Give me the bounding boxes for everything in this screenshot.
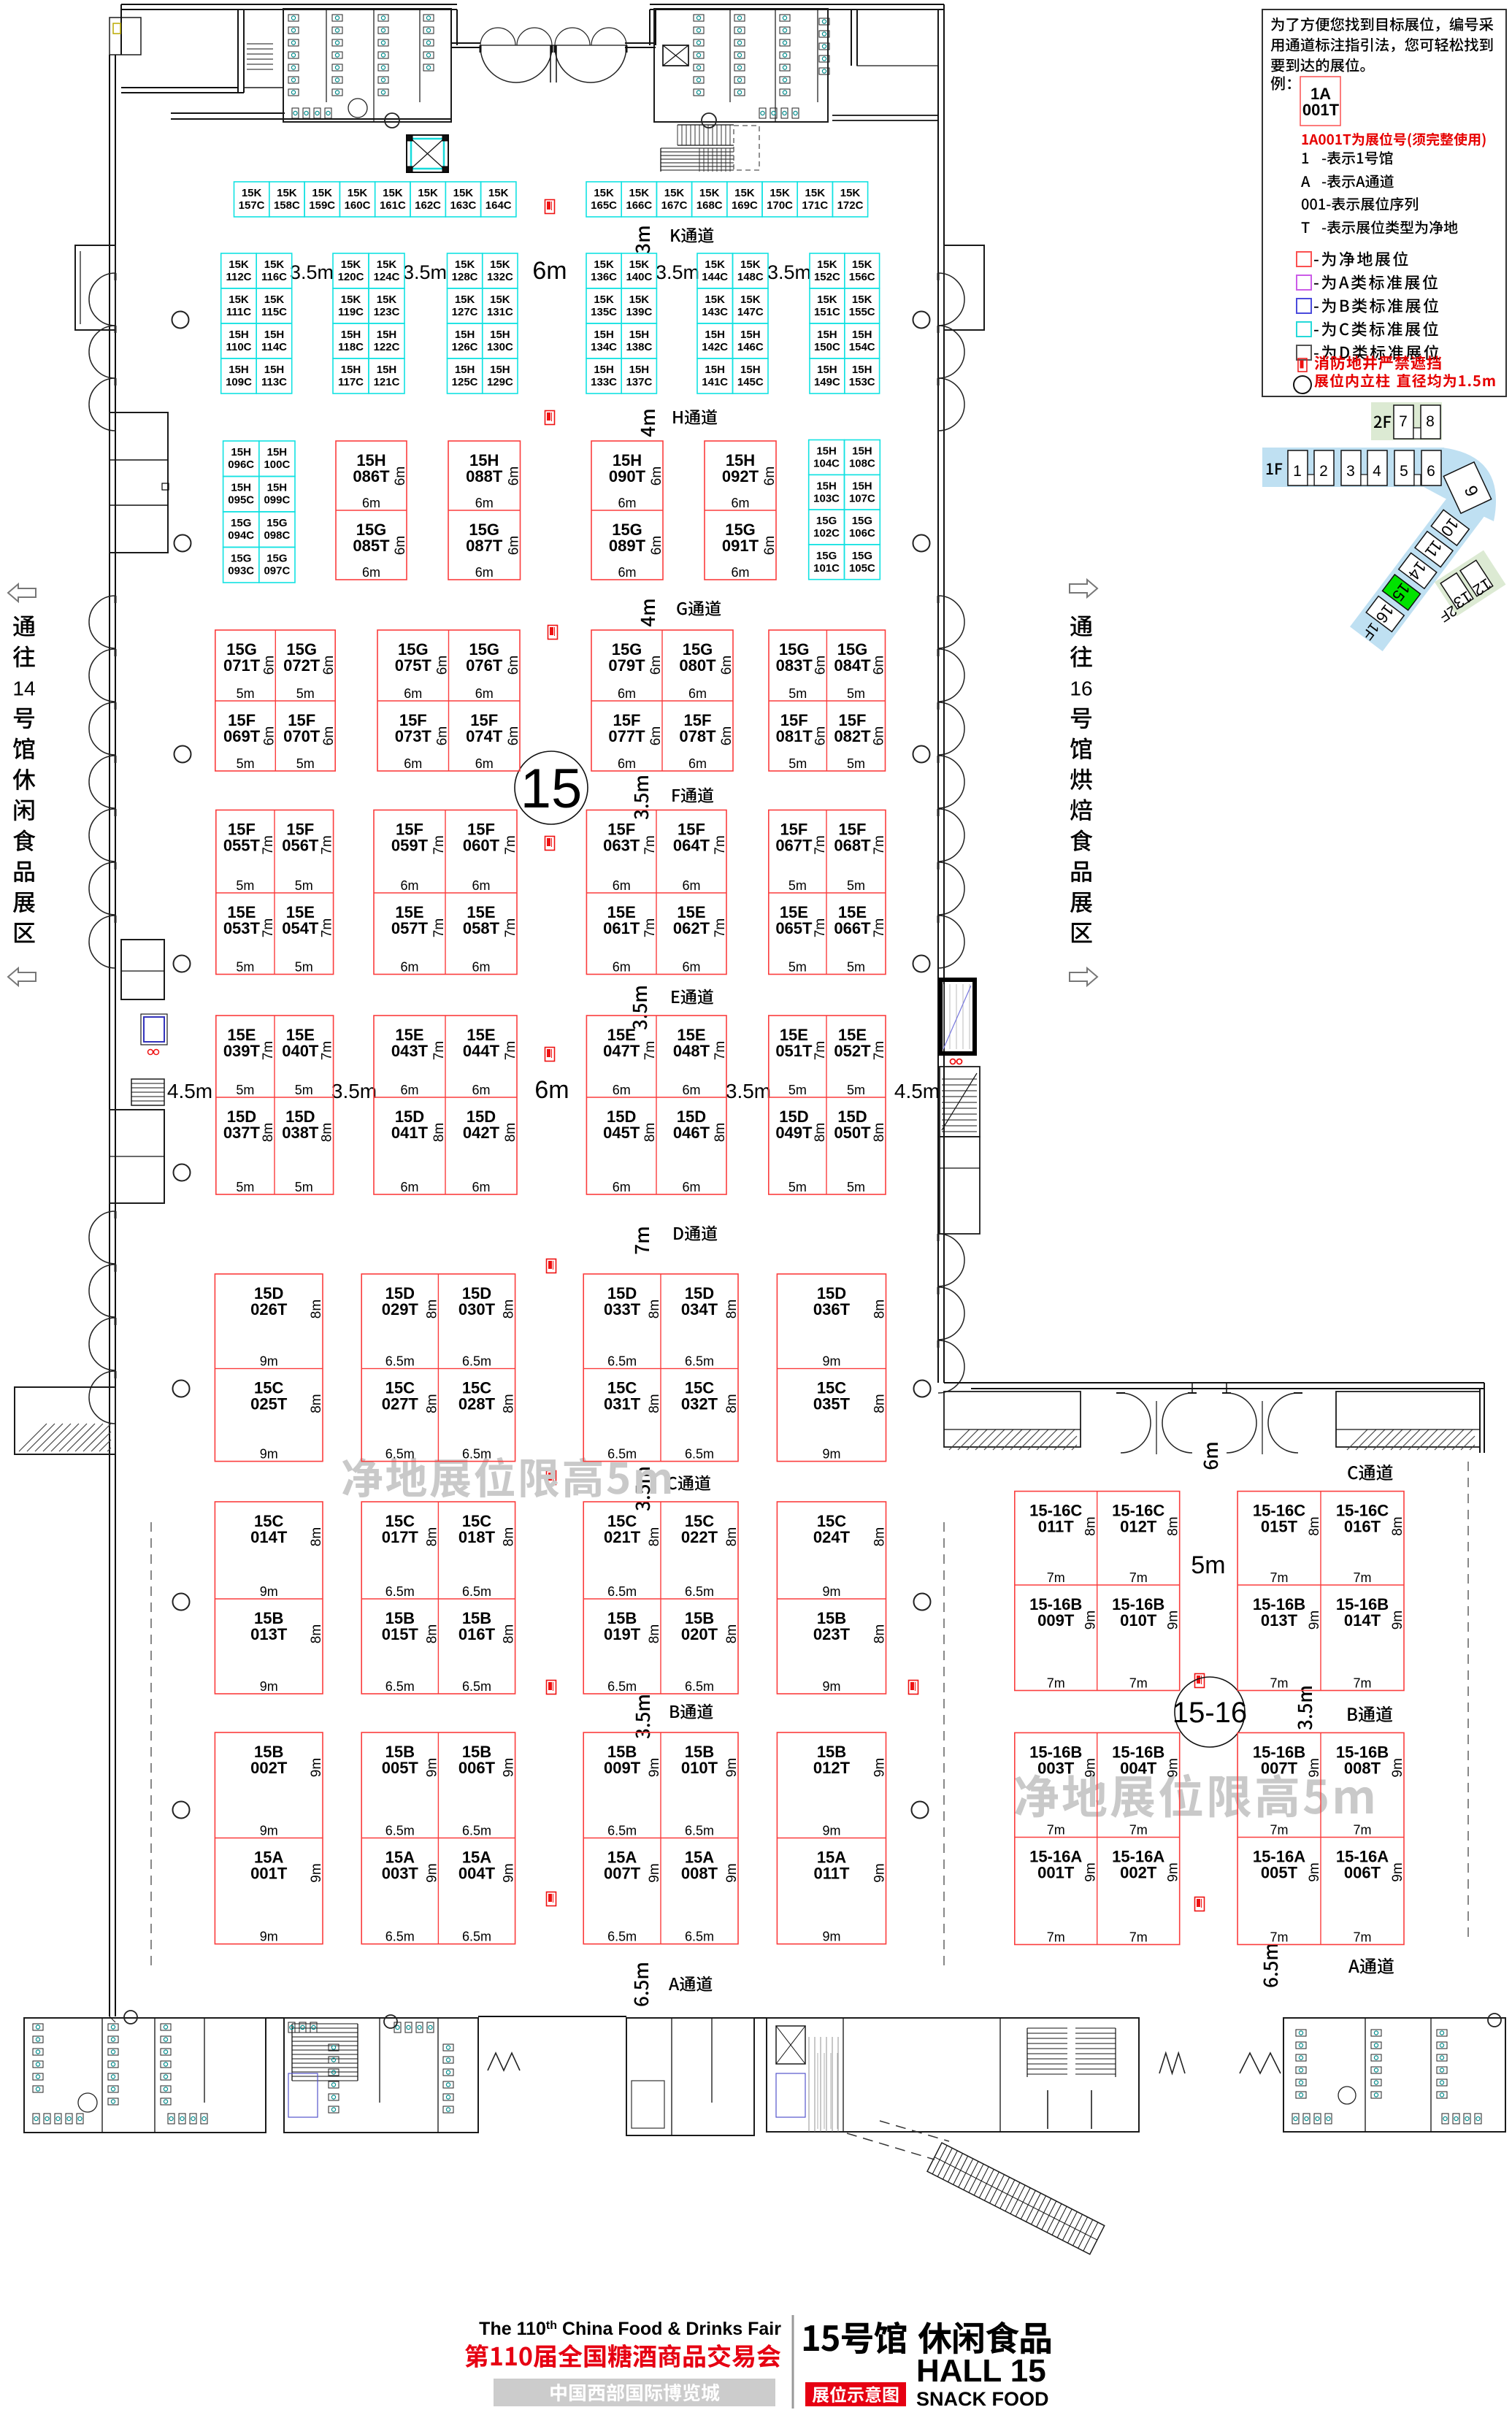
svg-text:7m: 7m [431,918,447,937]
svg-text:7m: 7m [320,835,335,854]
svg-text:046T: 046T [673,1124,710,1142]
svg-text:165C: 165C [591,199,617,212]
svg-text:6m: 6m [321,726,337,745]
svg-text:5m: 5m [788,756,807,771]
svg-text:008T: 008T [681,1865,718,1883]
svg-text:6.5m: 6.5m [462,1824,491,1838]
svg-text:122C: 122C [374,341,400,353]
svg-text:8m: 8m [872,1527,888,1546]
svg-text:5m: 5m [236,960,254,975]
svg-text:6m: 6m [648,726,664,745]
svg-text:6m: 6m [719,726,734,745]
svg-text:7m: 7m [713,1041,728,1060]
svg-text:082T: 082T [834,727,871,745]
svg-text:052T: 052T [834,1042,871,1060]
svg-text:161C: 161C [380,199,406,212]
svg-text:003T: 003T [382,1865,419,1883]
svg-text:8m: 8m [424,1624,440,1643]
svg-text:6.5m: 6.5m [385,1354,415,1369]
svg-text:8m: 8m [1390,1516,1405,1535]
svg-text:6m: 6m [475,756,494,771]
svg-text:144C: 144C [702,271,728,283]
svg-text:072T: 072T [283,656,321,675]
svg-text:6m: 6m [682,1180,700,1194]
svg-text:041T: 041T [391,1124,429,1142]
svg-text:9m: 9m [724,1863,740,1882]
svg-text:002T: 002T [1120,1864,1157,1882]
svg-text:15K: 15K [629,187,650,199]
svg-text:094C: 094C [228,529,254,542]
svg-text:15G: 15G [852,515,872,527]
svg-text:7m: 7m [1353,1570,1371,1585]
svg-text:6m: 6m [872,656,887,675]
svg-text:9m: 9m [822,1584,840,1599]
svg-text:5m: 5m [847,686,865,701]
svg-text:157C: 157C [239,199,265,212]
svg-text:143C: 143C [702,306,728,318]
svg-text:6.5m: 6.5m [607,1824,637,1838]
svg-text:5m: 5m [788,686,807,701]
svg-text:15K: 15K [817,258,837,271]
svg-text:014T: 014T [250,1528,288,1546]
svg-text:019T: 019T [604,1625,641,1643]
svg-text:139C: 139C [626,306,652,318]
svg-text:15K: 15K [740,293,761,306]
svg-text:9m: 9m [260,1584,278,1599]
svg-text:6.5m: 6.5m [462,1447,491,1462]
svg-text:6m: 6m [472,1180,490,1194]
svg-text:15H: 15H [231,482,251,494]
svg-text:4.5m: 4.5m [167,1080,212,1102]
svg-text:114C: 114C [261,341,287,353]
svg-text:15K: 15K [264,258,285,271]
svg-text:034T: 034T [681,1300,718,1319]
svg-text:8m: 8m [1083,1516,1099,1535]
svg-text:100C: 100C [264,458,290,471]
svg-text:6.5m: 6.5m [607,1584,637,1599]
svg-text:15G: 15G [231,553,251,565]
svg-text:7m: 7m [642,1041,658,1060]
svg-text:9m: 9m [1166,1611,1181,1630]
svg-text:15H: 15H [817,364,837,376]
svg-text:149C: 149C [814,376,840,388]
svg-text:15H: 15H [267,482,288,494]
svg-text:6m: 6m [618,496,636,510]
svg-text:9m: 9m [647,1863,662,1882]
svg-text:8m: 8m [431,1123,447,1142]
svg-text:103C: 103C [813,492,840,504]
svg-text:4.5m: 4.5m [894,1080,940,1102]
svg-text:017T: 017T [382,1528,419,1546]
svg-text:160C: 160C [345,199,371,212]
svg-text:15K: 15K [341,258,361,271]
svg-text:047T: 047T [603,1042,640,1060]
svg-text:125C: 125C [452,376,478,388]
svg-text:7m: 7m [642,835,658,854]
svg-text:099C: 099C [264,494,290,507]
svg-text:079T: 079T [608,656,645,675]
svg-text:163C: 163C [450,199,476,212]
svg-text:6m: 6m [472,878,490,893]
svg-text:15K: 15K [229,258,249,271]
svg-text:172C: 172C [837,199,864,212]
svg-text:009T: 009T [604,1759,641,1777]
svg-text:071T: 071T [223,656,261,675]
svg-text:8m: 8m [502,1624,517,1643]
svg-text:15H: 15H [852,364,872,376]
svg-text:8m: 8m [724,1527,740,1546]
svg-text:5m: 5m [788,960,807,975]
svg-text:170C: 170C [767,199,793,212]
svg-text:15K: 15K [455,258,475,271]
svg-text:7m: 7m [1047,1823,1065,1838]
svg-text:6m: 6m [618,565,636,580]
svg-text:6m: 6m [506,726,521,745]
svg-text:15H: 15H [229,329,249,341]
svg-text:6m: 6m [813,726,828,745]
svg-text:7m: 7m [642,918,658,937]
svg-text:5m: 5m [295,1180,313,1194]
svg-text:081T: 081T [776,727,813,745]
svg-text:023T: 023T [813,1625,851,1643]
svg-text:15K: 15K [852,258,872,271]
svg-text:6m: 6m [618,686,636,701]
svg-text:15G: 15G [266,553,287,565]
svg-text:8m: 8m [642,1123,658,1142]
svg-text:005T: 005T [382,1759,419,1777]
svg-text:15H: 15H [629,364,650,376]
svg-text:8m: 8m [872,1624,888,1643]
svg-text:9m: 9m [1307,1862,1322,1881]
svg-text:7m: 7m [1047,1676,1065,1691]
svg-text:130C: 130C [487,341,513,353]
svg-text:5m: 5m [295,878,313,893]
svg-text:102C: 102C [813,527,840,540]
svg-text:112C: 112C [226,271,251,283]
svg-text:6.5m: 6.5m [685,1584,714,1599]
svg-text:086T: 086T [353,467,390,485]
svg-text:15G: 15G [816,550,837,562]
svg-text:8m: 8m [647,1527,662,1546]
svg-text:9m: 9m [260,1447,278,1462]
svg-text:15K: 15K [488,187,509,199]
svg-text:039T: 039T [223,1042,261,1060]
svg-text:1: 1 [1293,463,1302,480]
svg-text:6.5m: 6.5m [685,1824,714,1838]
svg-text:6m: 6m [261,656,277,675]
svg-text:5m: 5m [236,1180,254,1194]
svg-text:15H: 15H [817,329,837,341]
svg-text:101C: 101C [813,562,840,575]
svg-text:050T: 050T [834,1124,871,1142]
svg-text:104C: 104C [813,458,840,470]
svg-text:133C: 133C [591,376,617,388]
svg-text:3.5m: 3.5m [331,1080,377,1102]
svg-text:134C: 134C [591,341,617,353]
svg-text:8m: 8m [309,1394,324,1413]
svg-text:6.5m: 6.5m [462,1354,491,1369]
svg-text:015T: 015T [1261,1518,1298,1536]
svg-text:7m: 7m [431,1041,447,1060]
svg-text:6m: 6m [435,726,450,745]
svg-text:5m: 5m [847,1083,865,1097]
svg-text:15K: 15K [242,187,262,199]
svg-text:006T: 006T [458,1759,496,1777]
svg-text:3: 3 [1346,463,1355,480]
svg-text:8m: 8m [502,1527,517,1546]
svg-text:9m: 9m [872,1863,888,1882]
svg-text:156C: 156C [849,271,875,283]
svg-text:7m: 7m [713,918,728,937]
svg-text:6m: 6m [507,536,522,555]
svg-text:15K: 15K [852,293,872,306]
svg-text:6.5m: 6.5m [685,1679,714,1694]
svg-text:8m: 8m [647,1394,662,1413]
svg-text:9m: 9m [724,1758,740,1777]
svg-text:15H: 15H [705,329,725,341]
svg-text:077T: 077T [608,727,645,745]
svg-text:5m: 5m [847,756,865,771]
svg-text:8m: 8m [424,1300,440,1319]
svg-text:078T: 078T [679,727,716,745]
svg-text:035T: 035T [813,1395,851,1413]
svg-text:9m: 9m [309,1758,324,1777]
svg-text:042T: 042T [463,1124,500,1142]
svg-text:092T: 092T [722,467,759,485]
svg-text:089T: 089T [609,537,646,555]
svg-text:2: 2 [1319,463,1328,480]
svg-text:7m: 7m [431,835,447,854]
svg-text:013T: 013T [1261,1611,1298,1630]
svg-text:6m: 6m [682,960,700,975]
svg-text:6m: 6m [393,467,408,485]
svg-text:6.5m: 6.5m [685,1930,714,1944]
svg-text:141C: 141C [702,376,728,388]
svg-text:6.5m: 6.5m [607,1354,637,1369]
svg-text:5: 5 [1400,463,1408,480]
svg-text:022T: 022T [681,1528,718,1546]
svg-text:5m: 5m [788,1083,807,1097]
svg-text:7m: 7m [261,1041,276,1060]
svg-text:15K: 15K [705,258,725,271]
svg-text:6m: 6m [393,536,408,555]
svg-text:015T: 015T [382,1625,419,1643]
svg-text:15H: 15H [740,329,761,341]
svg-text:007T: 007T [1261,1759,1298,1777]
svg-text:6m: 6m [649,536,664,555]
svg-text:15K: 15K [277,187,297,199]
svg-text:15H: 15H [377,329,397,341]
svg-text:168C: 168C [696,199,723,212]
svg-text:15H: 15H [816,445,837,458]
svg-text:003T: 003T [1037,1759,1075,1777]
svg-text:037T: 037T [223,1124,261,1142]
svg-text:027T: 027T [382,1395,419,1413]
svg-text:15H: 15H [264,329,285,341]
svg-text:8m: 8m [872,1123,887,1142]
svg-text:15H: 15H [267,446,288,458]
svg-text:166C: 166C [626,199,652,212]
svg-text:7m: 7m [320,1041,335,1060]
svg-text:158C: 158C [274,199,300,212]
svg-text:075T: 075T [395,656,432,675]
svg-text:8m: 8m [872,1394,888,1413]
svg-text:115C: 115C [261,306,287,318]
svg-text:6.5m: 6.5m [385,1930,415,1944]
svg-text:15H: 15H [852,329,872,341]
svg-text:8m: 8m [724,1394,740,1413]
svg-text:006T: 006T [1344,1864,1381,1882]
svg-text:15H: 15H [740,364,761,376]
svg-text:9m: 9m [822,1679,840,1694]
svg-text:6m: 6m [404,756,422,771]
svg-text:15K: 15K [699,187,720,199]
svg-text:164C: 164C [486,199,512,212]
svg-text:15K: 15K [734,187,755,199]
svg-text:123C: 123C [374,306,400,318]
svg-text:8m: 8m [872,1300,888,1319]
svg-text:001T: 001T [250,1865,288,1883]
svg-text:036T: 036T [813,1300,851,1319]
svg-text:7m: 7m [813,1041,828,1060]
svg-text:8m: 8m [503,1123,518,1142]
svg-text:15H: 15H [490,329,510,341]
svg-text:16: 16 [1070,678,1092,700]
svg-text:138C: 138C [626,341,652,353]
svg-text:087T: 087T [466,537,503,555]
svg-text:15K: 15K [455,293,475,306]
svg-text:6m: 6m [719,656,734,675]
svg-text:15K: 15K [805,187,826,199]
svg-text:9m: 9m [1390,1611,1405,1630]
svg-text:127C: 127C [452,306,478,318]
svg-text:9m: 9m [822,1930,840,1944]
svg-text:124C: 124C [374,271,400,283]
svg-text:15K: 15K [664,187,685,199]
svg-text:7m: 7m [872,835,887,854]
svg-text:056T: 056T [282,837,319,855]
svg-text:9m: 9m [260,1824,278,1838]
svg-text:6m: 6m [400,1083,418,1097]
svg-text:15K: 15K [264,293,285,306]
svg-text:7m: 7m [261,835,276,854]
svg-text:6m: 6m [532,257,567,285]
svg-text:7m: 7m [320,918,335,937]
svg-text:15G: 15G [231,517,251,529]
svg-text:15K: 15K [229,293,249,306]
svg-text:105C: 105C [849,562,875,575]
svg-text:6m: 6m [506,656,521,675]
svg-text:15H: 15H [594,364,614,376]
svg-text:093C: 093C [228,565,254,577]
svg-text:011T: 011T [814,1865,850,1883]
svg-text:110C: 110C [226,341,251,353]
svg-text:085T: 085T [353,537,390,555]
svg-text:095C: 095C [228,494,254,507]
svg-text:15G: 15G [816,515,837,527]
svg-text:15H: 15H [455,329,475,341]
svg-text:15G: 15G [852,550,872,562]
svg-text:6m: 6m [400,878,418,893]
svg-text:6m: 6m [475,686,494,701]
svg-text:004T: 004T [458,1865,496,1883]
svg-text:150C: 150C [814,341,840,353]
svg-text:117C: 117C [338,376,364,388]
svg-text:15H: 15H [231,446,251,458]
svg-text:15H: 15H [852,480,872,492]
svg-text:001T: 001T [1302,101,1340,119]
svg-text:6m: 6m [613,960,631,975]
svg-text:6.5m: 6.5m [607,1447,637,1462]
svg-text:6m: 6m [648,656,664,675]
svg-text:15K: 15K [840,187,861,199]
svg-text:020T: 020T [681,1625,718,1643]
svg-text:15K: 15K [770,187,790,199]
svg-text:6m: 6m [813,656,828,675]
svg-text:6.5m: 6.5m [685,1354,714,1369]
svg-text:9m: 9m [502,1863,517,1882]
svg-text:7m: 7m [1129,1570,1148,1585]
svg-text:012T: 012T [813,1759,851,1777]
svg-text:15H: 15H [341,364,361,376]
svg-text:15H: 15H [264,364,285,376]
svg-text:6m: 6m [475,496,494,510]
svg-text:9m: 9m [822,1447,840,1462]
svg-text:051T: 051T [775,1042,813,1060]
svg-text:5m: 5m [847,878,865,893]
svg-text:018T: 018T [458,1528,496,1546]
svg-text:3.5m: 3.5m [726,1080,771,1102]
svg-text:136C: 136C [591,271,617,283]
svg-text:6m: 6m [762,467,778,485]
svg-text:8: 8 [1426,413,1435,430]
svg-text:6m: 6m [362,565,380,580]
svg-text:153C: 153C [849,376,875,388]
svg-text:097C: 097C [264,565,290,577]
svg-text:9m: 9m [1166,1862,1181,1881]
svg-text:007T: 007T [604,1865,641,1883]
svg-text:5m: 5m [236,1083,254,1097]
svg-text:058T: 058T [463,919,500,937]
svg-text:126C: 126C [452,341,478,353]
svg-text:6m: 6m [613,878,631,893]
svg-text:121C: 121C [374,376,400,388]
svg-text:137C: 137C [626,376,652,388]
svg-text:005T: 005T [1261,1864,1298,1882]
svg-text:9m: 9m [1083,1611,1099,1630]
svg-text:6.5m: 6.5m [685,1447,714,1462]
svg-text:021T: 021T [604,1528,641,1546]
svg-text:010T: 010T [1120,1611,1157,1630]
svg-text:6m: 6m [682,878,700,893]
svg-text:167C: 167C [661,199,688,212]
svg-text:154C: 154C [849,341,875,353]
svg-text:15K: 15K [383,187,403,199]
svg-text:6.5m: 6.5m [607,1930,637,1944]
svg-text:6m: 6m [435,656,450,675]
svg-text:7m: 7m [1270,1676,1288,1691]
svg-text:6.5m: 6.5m [462,1930,491,1944]
svg-text:118C: 118C [338,341,364,353]
svg-text:146C: 146C [737,341,764,353]
svg-text:076T: 076T [466,656,503,675]
svg-text:073T: 073T [395,727,432,745]
svg-text:066T: 066T [834,919,871,937]
svg-text:025T: 025T [250,1395,288,1413]
svg-text:7m: 7m [872,918,887,937]
svg-text:7m: 7m [1353,1930,1371,1945]
svg-text:SNACK FOOD: SNACK FOOD [916,2388,1049,2410]
